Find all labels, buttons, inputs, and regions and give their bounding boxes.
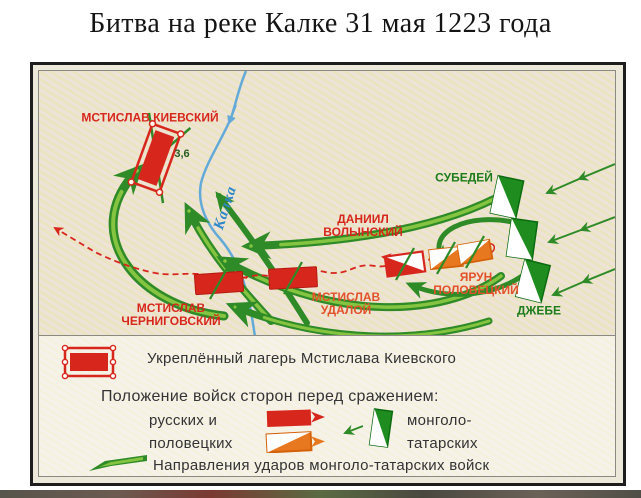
label-yarun-polovetsky: ЯРУН ПОЛОВЕЦКИЙ: [433, 271, 518, 297]
label-mstislav-kievsky: МСТИСЛАВ КИЕВСКИЙ: [81, 111, 218, 124]
legend-attacks-label: Направления ударов монголо-татарских вой…: [153, 457, 489, 474]
map-legend: Укреплённый лагерь Мстислава Киевского П…: [38, 335, 616, 477]
page-title: Битва на реке Калке 31 мая 1223 года: [0, 8, 641, 40]
river-flow-arrow: [229, 105, 236, 123]
legend-polovtsian-unit-icon: [265, 431, 329, 453]
battle-map: МСТИСЛАВ КИЕВСКИЙ 3,6 СУБЕДЕЙ ДАНИИЛ ВОЛ…: [38, 70, 616, 336]
legend-camp-icon: [59, 342, 119, 382]
mongol-unit-symbol: [490, 176, 523, 219]
label-subedei: СУБЕДЕЙ: [435, 171, 493, 184]
legend-russian-unit-icon: [265, 408, 329, 428]
mongol-unit-symbol: [516, 259, 550, 302]
mongol-approach-arrows: [547, 164, 615, 295]
legend-camp-label: Укреплённый лагерь Мстислава Киевского: [147, 350, 456, 367]
mongol-unit-symbol: [506, 218, 537, 259]
legend-mongol-label: монголо- татарских: [407, 410, 478, 455]
cropped-next-figure-strip: [0, 490, 641, 498]
label-jebe: ДЖЕБЕ: [517, 304, 561, 317]
label-mstislav-udaloy: МСТИСЛАВ УДАЛОЙ: [312, 291, 380, 317]
label-mstislav-chernigovsky: МСТИСЛАВ ЧЕРНИГОВСКИЙ: [121, 302, 220, 328]
legend-mongol-unit-icon: [335, 404, 401, 452]
map-frame: МСТИСЛАВ КИЕВСКИЙ 3,6 СУБЕДЕЙ ДАНИИЛ ВОЛ…: [30, 62, 626, 486]
legend-attack-arrow-icon: [87, 452, 149, 476]
label-camp-strength: 3,6: [174, 148, 189, 160]
legend-rus-polov-label: русских и половецких: [149, 410, 233, 455]
label-daniil-volynsky: ДАНИИЛ ВОЛЫНСКИЙ: [323, 213, 402, 239]
